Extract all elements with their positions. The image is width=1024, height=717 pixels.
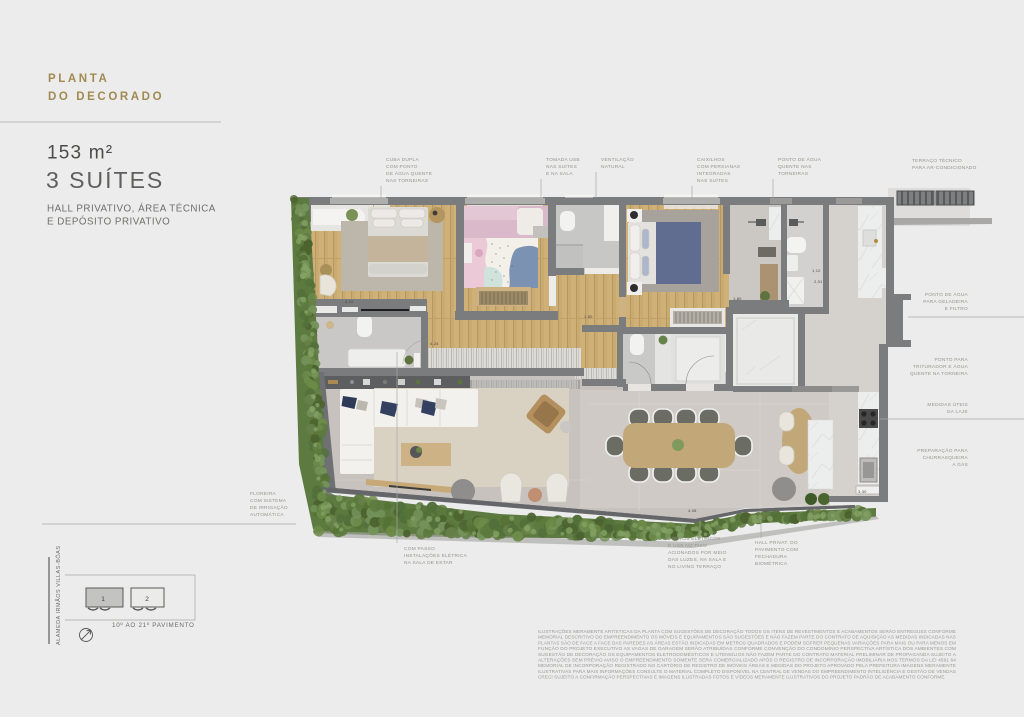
svg-text:FLOREIRA: FLOREIRA [250, 491, 277, 497]
svg-text:PARA AR-CONDICIONADO: PARA AR-CONDICIONADO [912, 165, 977, 171]
svg-text:PLANTAS SÃO DE FACE A FACE DAS: PLANTAS SÃO DE FACE A FACE DAS PAREDES A… [538, 639, 956, 645]
svg-text:PONTO PARA: PONTO PARA [934, 357, 968, 363]
svg-text:NAS SUÍTES: NAS SUÍTES [546, 163, 577, 170]
svg-text:AUTOMÁTICA: AUTOMÁTICA [250, 511, 284, 518]
svg-text:3 SUÍTES: 3 SUÍTES [46, 167, 164, 193]
svg-text:TERRAÇO TÉCNICO: TERRAÇO TÉCNICO [912, 157, 962, 164]
svg-text:TRITURADOR E ÁGUA: TRITURADOR E ÁGUA [913, 363, 969, 370]
svg-text:2,01: 2,01 [814, 279, 823, 284]
svg-text:4,08: 4,08 [688, 508, 697, 513]
svg-text:PONTO DE ÁGUA: PONTO DE ÁGUA [778, 156, 822, 163]
svg-text:MEDIDAS ÚTEIS: MEDIDAS ÚTEIS [927, 401, 968, 408]
svg-text:A GÁS: A GÁS [952, 461, 968, 468]
svg-text:PARA GELADEIRA: PARA GELADEIRA [923, 299, 968, 305]
svg-text:4,02: 4,02 [345, 299, 354, 304]
svg-text:INSTALAÇÕES ELÉTRICA: INSTALAÇÕES ELÉTRICA [404, 552, 468, 559]
svg-text:DE ÁGUA QUENTE: DE ÁGUA QUENTE [386, 170, 432, 177]
svg-text:153 m²: 153 m² [47, 143, 113, 164]
svg-text:4,24: 4,24 [430, 341, 439, 346]
svg-text:HALL PRIVAT. DO: HALL PRIVAT. DO [755, 540, 798, 546]
svg-text:VENTILAÇÃO: VENTILAÇÃO [601, 156, 634, 163]
svg-text:COM PONTO: COM PONTO [386, 164, 418, 170]
svg-text:1,80: 1,80 [584, 314, 593, 319]
svg-text:MEMORIAL DESCRITIVO DO EMPREEN: MEMORIAL DESCRITIVO DO EMPREENDIMENTO OS… [538, 634, 956, 640]
svg-text:COM PASSO: COM PASSO [404, 546, 435, 552]
svg-text:DE IRRIGAÇÃO: DE IRRIGAÇÃO [250, 504, 288, 511]
svg-text:CHURRASQUEIRA: CHURRASQUEIRA [923, 455, 969, 461]
svg-text:NAS TORNEIRAS: NAS TORNEIRAS [386, 178, 428, 184]
svg-text:E FILTRO: E FILTRO [945, 306, 968, 312]
svg-text:ILUSTRAÇÕES MERAMENTE ARTÍSTIC: ILUSTRAÇÕES MERAMENTE ARTÍSTICAS DA PLAN… [538, 628, 956, 634]
svg-text:BIOMÉTRICA: BIOMÉTRICA [755, 560, 788, 567]
svg-text:DO DECORADO: DO DECORADO [48, 91, 164, 103]
svg-text:E NA SALA: E NA SALA [546, 171, 573, 177]
svg-text:1,12: 1,12 [812, 268, 821, 273]
svg-text:FUNÇÃO DO PROJETO EXECUTIVO AS: FUNÇÃO DO PROJETO EXECUTIVO AS VAGAS DE … [538, 645, 956, 651]
svg-text:PAVIMENTO COM: PAVIMENTO COM [755, 547, 798, 553]
svg-text:2: 2 [145, 596, 149, 603]
svg-text:SUGESTÃO DE DECORAÇÃO OS EQUIP: SUGESTÃO DE DECORAÇÃO OS EQUIPAMENTOS EL… [538, 651, 957, 657]
svg-text:PLANTA: PLANTA [48, 73, 109, 85]
svg-text:ACIONADOS POR MEIO: ACIONADOS POR MEIO [668, 550, 727, 556]
svg-text:DA LAJE: DA LAJE [947, 409, 968, 415]
svg-text:E DEPÓSITO PRIVATIVO: E DEPÓSITO PRIVATIVO [47, 217, 170, 228]
svg-text:NAS SUÍTES: NAS SUÍTES [697, 177, 728, 184]
svg-text:COM PERSIANAS: COM PERSIANAS [697, 164, 740, 170]
svg-text:ILUSTRATIVAS PARA MAIS INFORMA: ILUSTRATIVAS PARA MAIS INFORMAÇÕES CONSU… [538, 667, 956, 674]
svg-text:PREPARAÇÃO PARA: PREPARAÇÃO PARA [917, 447, 968, 454]
svg-text:QUENTE NAS: QUENTE NAS [778, 164, 812, 170]
svg-text:QUENTE NA TORNEIRA: QUENTE NA TORNEIRA [910, 371, 969, 377]
svg-text:MEMORIAL DE INCORPORAÇÃO REGIS: MEMORIAL DE INCORPORAÇÃO REGISTRADO NO C… [538, 662, 956, 668]
svg-text:E USB NO PISO: E USB NO PISO [668, 543, 707, 549]
svg-text:CUBA DUPLA: CUBA DUPLA [386, 157, 419, 163]
svg-text:1: 1 [101, 596, 105, 603]
svg-text:CRECI SUJEITO A CONFIRMAÇÃO PE: CRECI SUJEITO A CONFIRMAÇÃO PERSPECTIVAS… [538, 674, 945, 680]
svg-text:COM SISTEMA: COM SISTEMA [250, 498, 287, 504]
svg-text:INTEGRADAS: INTEGRADAS [697, 171, 731, 177]
svg-text:ALTERAÇÕES SEM PRÉVIO AVISO O: ALTERAÇÕES SEM PRÉVIO AVISO O EMPREENDIM… [538, 657, 956, 663]
svg-text:1,80: 1,80 [733, 296, 742, 301]
svg-text:FECHADURA: FECHADURA [755, 554, 788, 560]
svg-text:CAIXILHOS: CAIXILHOS [697, 157, 725, 163]
svg-text:TORNEIRAS: TORNEIRAS [778, 171, 808, 177]
svg-text:10º AO 21º PAVIMENTO: 10º AO 21º PAVIMENTO [112, 622, 195, 629]
svg-text:DAS LUZES, NA SALA E: DAS LUZES, NA SALA E [668, 557, 727, 563]
svg-text:NA SALA DE ESTAR: NA SALA DE ESTAR [404, 560, 453, 566]
svg-text:NO LIVING TERRAÇO: NO LIVING TERRAÇO [668, 564, 721, 570]
svg-text:3,30: 3,30 [858, 489, 867, 494]
svg-text:PONTO DE ÁGUA: PONTO DE ÁGUA [925, 291, 969, 298]
svg-text:HALL PRIVATIVO, ÁREA TÉCNICA: HALL PRIVATIVO, ÁREA TÉCNICA [47, 204, 216, 215]
svg-text:PONTOS ELÉTRICOS: PONTOS ELÉTRICOS [668, 535, 721, 542]
svg-text:TOMADA USB: TOMADA USB [546, 157, 580, 163]
svg-text:ALAMEDA IRMÃOS VILLAS-BÔAS: ALAMEDA IRMÃOS VILLAS-BÔAS [55, 545, 62, 645]
svg-text:NATURAL: NATURAL [601, 164, 625, 170]
